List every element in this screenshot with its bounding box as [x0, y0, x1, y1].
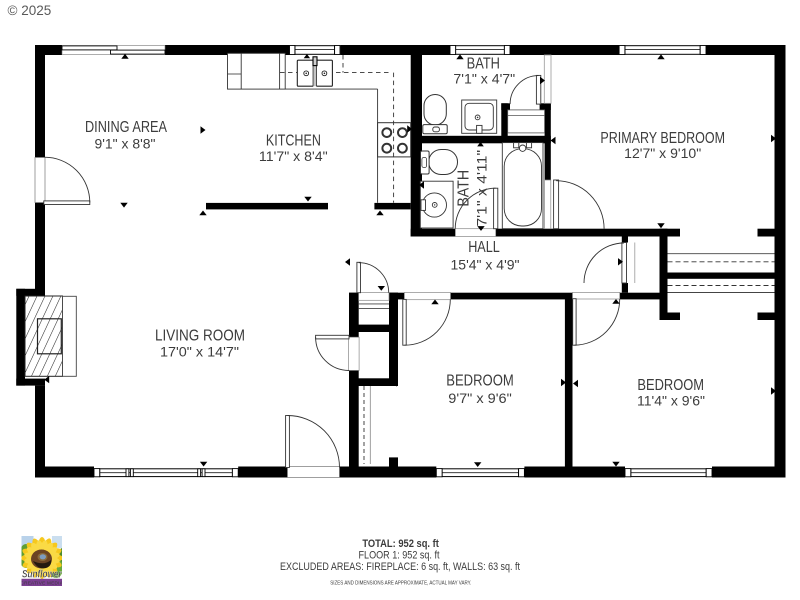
svg-text:15'4" x 4'9": 15'4" x 4'9" [451, 258, 520, 273]
svg-text:PRIMARY BEDROOM: PRIMARY BEDROOM [600, 130, 725, 147]
svg-text:KITCHEN: KITCHEN [266, 132, 321, 149]
svg-text:7'1" x 4'7": 7'1" x 4'7" [453, 72, 515, 87]
svg-text:EXCLUDED AREAS: FIREPLACE: 6 s: EXCLUDED AREAS: FIREPLACE: 6 sq. ft, WAL… [280, 561, 520, 573]
svg-text:FLOOR 1: 952 sq. ft: FLOOR 1: 952 sq. ft [359, 550, 440, 562]
svg-text:BATH: BATH [455, 170, 472, 207]
svg-text:11'7" x 8'4": 11'7" x 8'4" [259, 149, 328, 164]
svg-text:TOTAL: 952 sq. ft: TOTAL: 952 sq. ft [362, 538, 439, 550]
svg-text:17'0" x 14'7": 17'0" x 14'7" [160, 345, 239, 360]
svg-text:BATH: BATH [467, 55, 500, 72]
svg-text:BEDROOM: BEDROOM [446, 372, 514, 389]
svg-text:LIVING ROOM: LIVING ROOM [155, 328, 245, 345]
svg-text:SIZES AND DIMENSIONS ARE APPRO: SIZES AND DIMENSIONS ARE APPROXIMATE, AC… [330, 581, 471, 587]
svg-text:Sunflower: Sunflower [22, 569, 62, 581]
svg-text:DINING AREA: DINING AREA [85, 119, 167, 136]
svg-text:BEDROOM: BEDROOM [637, 377, 704, 394]
svg-text:7'1" x 4'11": 7'1" x 4'11" [475, 150, 490, 227]
svg-text:HALL: HALL [468, 239, 500, 256]
svg-text:11'4" x 9'6": 11'4" x 9'6" [637, 394, 705, 409]
svg-text:CREATIVE MEDIA: CREATIVE MEDIA [20, 581, 63, 586]
svg-text:© 2025: © 2025 [8, 3, 52, 18]
svg-text:9'7" x 9'6": 9'7" x 9'6" [448, 391, 512, 406]
svg-text:12'7" x 9'10": 12'7" x 9'10" [624, 146, 701, 161]
svg-text:9'1" x 8'8": 9'1" x 8'8" [95, 137, 156, 152]
